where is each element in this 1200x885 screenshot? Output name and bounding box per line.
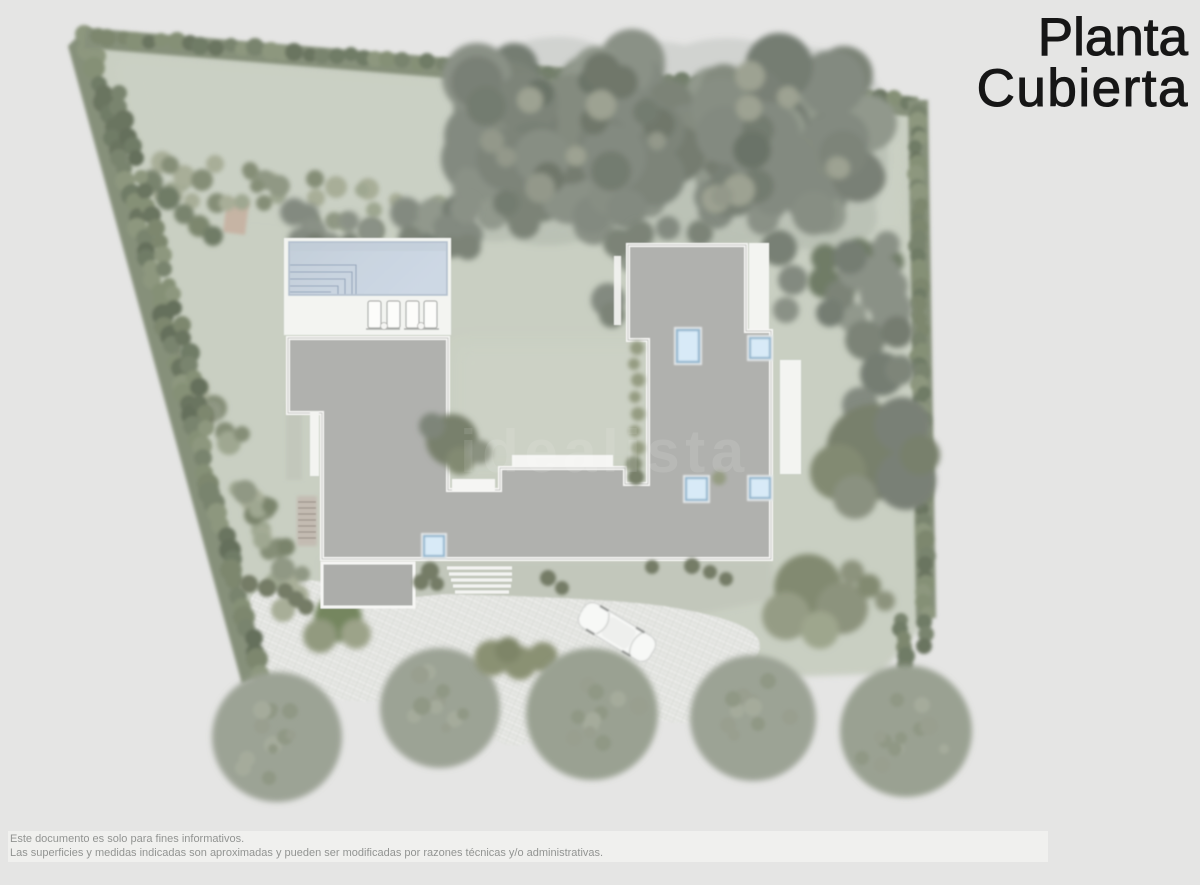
- svg-text:Las superficies y medidas indi: Las superficies y medidas indicadas son …: [10, 847, 603, 859]
- svg-text:Este documento es solo para fi: Este documento es solo para fines inform…: [10, 833, 244, 845]
- svg-text:idealista: idealista: [460, 418, 750, 485]
- svg-text:Cubierta: Cubierta: [977, 59, 1189, 118]
